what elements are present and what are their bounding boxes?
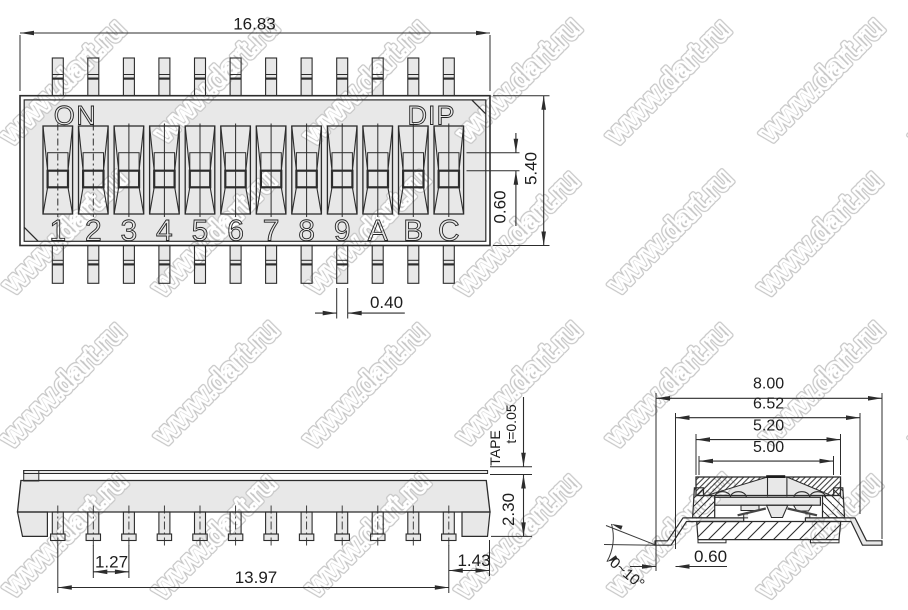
svg-text:6: 6 [227, 215, 244, 248]
svg-text:13.97: 13.97 [235, 568, 278, 587]
svg-text:5: 5 [192, 215, 209, 248]
svg-text:2.30: 2.30 [499, 493, 518, 526]
svg-text:A: A [368, 215, 388, 248]
svg-text:B: B [403, 215, 423, 248]
svg-text:7: 7 [263, 215, 280, 248]
svg-text:9: 9 [334, 215, 351, 248]
svg-text:1: 1 [49, 215, 66, 248]
svg-text:DIP: DIP [407, 101, 455, 131]
svg-text:8.00: 8.00 [753, 376, 784, 393]
svg-text:5.00: 5.00 [753, 439, 784, 456]
svg-text:C: C [438, 215, 460, 248]
svg-text:0.40: 0.40 [370, 293, 403, 312]
svg-text:5.20: 5.20 [753, 418, 784, 435]
svg-text:6.52: 6.52 [753, 396, 784, 413]
svg-text:1.27: 1.27 [95, 553, 128, 572]
svg-text:4: 4 [156, 215, 173, 248]
svg-text:8: 8 [298, 215, 315, 248]
svg-text:0.60: 0.60 [491, 190, 510, 223]
svg-text:ON: ON [54, 101, 98, 131]
svg-text:t=0.05: t=0.05 [503, 404, 519, 444]
svg-text:5.40: 5.40 [522, 152, 541, 185]
svg-text:2: 2 [85, 215, 102, 248]
svg-text:TAPE: TAPE [487, 430, 503, 466]
svg-text:3: 3 [121, 215, 138, 248]
svg-text:0.60: 0.60 [694, 547, 727, 566]
svg-text:1.43: 1.43 [457, 551, 490, 570]
svg-text:16.83: 16.83 [233, 15, 276, 34]
